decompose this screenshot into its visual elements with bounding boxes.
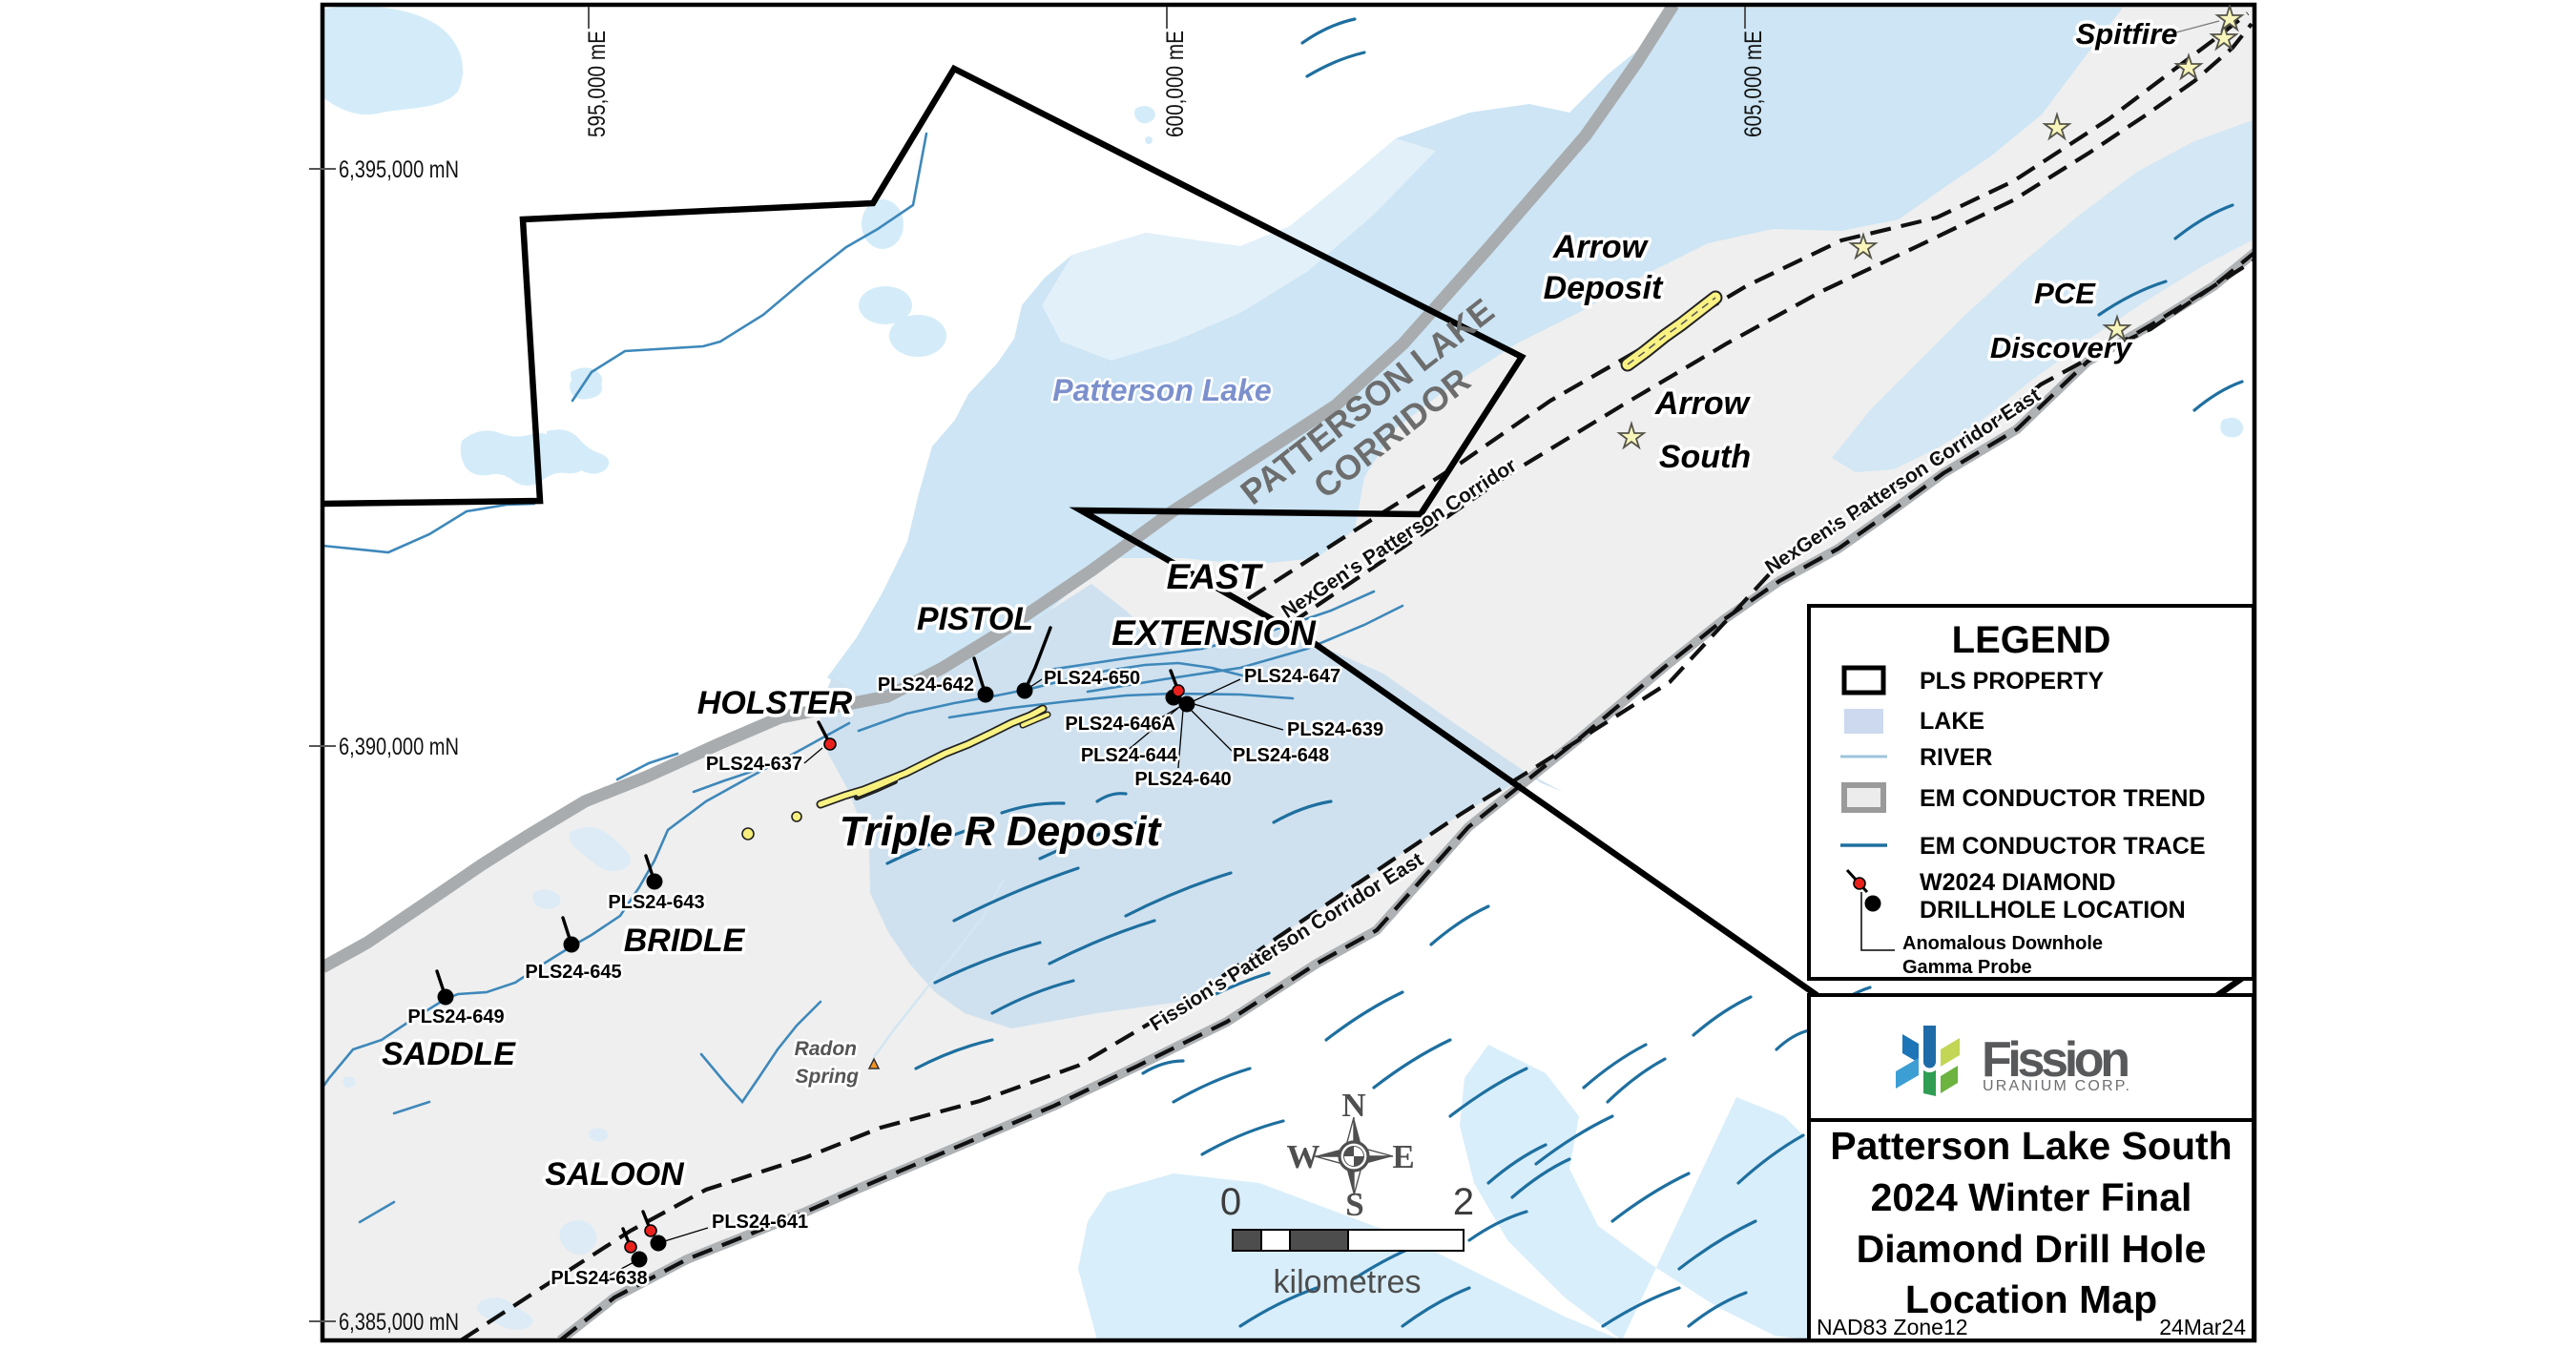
svg-text:PLS24-642: PLS24-642 xyxy=(878,674,974,695)
svg-text:PLS24-644: PLS24-644 xyxy=(1081,745,1178,766)
svg-text:PLS24-640: PLS24-640 xyxy=(1134,769,1231,790)
svg-text:PLS24-648: PLS24-648 xyxy=(1233,745,1329,766)
svg-text:Spitfire: Spitfire xyxy=(2076,17,2178,51)
svg-text:RIVER: RIVER xyxy=(1920,744,1992,771)
svg-text:Arrow: Arrow xyxy=(1552,229,1650,265)
svg-text:Arrow: Arrow xyxy=(1654,385,1752,422)
svg-text:6,385,000 mN: 6,385,000 mN xyxy=(339,1309,459,1336)
svg-text:HOLSTER: HOLSTER xyxy=(697,685,853,721)
svg-text:W: W xyxy=(1287,1138,1320,1175)
svg-text:Triple R Deposit: Triple R Deposit xyxy=(840,808,1163,855)
svg-text:PLS24-639: PLS24-639 xyxy=(1287,719,1383,740)
svg-text:S: S xyxy=(1345,1186,1363,1223)
svg-text:E: E xyxy=(1392,1138,1414,1175)
svg-text:SALOON: SALOON xyxy=(545,1156,685,1193)
svg-text:PLS24-637: PLS24-637 xyxy=(706,754,802,775)
svg-text:PLS PROPERTY: PLS PROPERTY xyxy=(1920,668,2104,695)
svg-text:PLS24-649: PLS24-649 xyxy=(407,1007,504,1027)
svg-text:PLS24-645: PLS24-645 xyxy=(525,962,621,983)
svg-text:LAKE: LAKE xyxy=(1920,708,1984,735)
svg-text:24Mar24: 24Mar24 xyxy=(2159,1315,2246,1339)
svg-text:EM CONDUCTOR TRACE: EM CONDUCTOR TRACE xyxy=(1920,833,2206,860)
svg-text:595,000 mE: 595,000 mE xyxy=(584,31,611,137)
svg-text:W2024 DIAMOND: W2024 DIAMOND xyxy=(1920,869,2116,896)
svg-text:Spring: Spring xyxy=(796,1066,860,1088)
svg-text:Gamma Probe: Gamma Probe xyxy=(1902,957,2032,978)
svg-text:PLS24-647: PLS24-647 xyxy=(1244,666,1340,687)
svg-text:kilometres: kilometres xyxy=(1274,1264,1422,1300)
svg-text:URANIUM CORP.: URANIUM CORP. xyxy=(1983,1078,2131,1094)
svg-text:DRILLHOLE LOCATION: DRILLHOLE LOCATION xyxy=(1920,897,2186,924)
svg-text:Patterson Lake South: Patterson Lake South xyxy=(1830,1124,2232,1168)
svg-text:Deposit: Deposit xyxy=(1544,270,1664,306)
svg-text:Patterson Lake: Patterson Lake xyxy=(1052,373,1271,407)
svg-text:6,390,000 mN: 6,390,000 mN xyxy=(339,734,459,760)
svg-text:EM CONDUCTOR TREND: EM CONDUCTOR TREND xyxy=(1920,785,2206,812)
svg-text:BRIDLE: BRIDLE xyxy=(624,923,746,959)
svg-text:LEGEND: LEGEND xyxy=(1952,619,2111,661)
svg-text:Diamond Drill Hole: Diamond Drill Hole xyxy=(1857,1227,2207,1271)
svg-text:PISTOL: PISTOL xyxy=(917,601,1033,637)
svg-text:605,000 mE: 605,000 mE xyxy=(1740,31,1767,137)
svg-text:SADDLE: SADDLE xyxy=(382,1036,516,1072)
svg-text:6,395,000 mN: 6,395,000 mN xyxy=(339,156,459,183)
svg-text:PLS24-646A: PLS24-646A xyxy=(1065,714,1175,735)
svg-text:PLS24-650: PLS24-650 xyxy=(1044,668,1140,689)
svg-text:2024 Winter Final: 2024 Winter Final xyxy=(1871,1175,2192,1219)
svg-text:EXTENSION: EXTENSION xyxy=(1111,613,1317,653)
svg-text:NAD83 Zone12: NAD83 Zone12 xyxy=(1817,1315,1968,1339)
svg-text:South: South xyxy=(1659,439,1751,475)
svg-text:EAST: EAST xyxy=(1167,557,1264,596)
svg-text:PLS24-643: PLS24-643 xyxy=(608,892,704,913)
svg-text:PLS24-638: PLS24-638 xyxy=(551,1268,647,1289)
svg-text:Radon: Radon xyxy=(795,1038,857,1060)
svg-text:N: N xyxy=(1341,1087,1365,1124)
svg-text:PCE: PCE xyxy=(2034,277,2096,310)
svg-text:Anomalous Downhole: Anomalous Downhole xyxy=(1902,933,2103,954)
svg-text:600,000 mE: 600,000 mE xyxy=(1162,31,1189,137)
svg-text:PLS24-641: PLS24-641 xyxy=(712,1212,808,1233)
svg-text:0: 0 xyxy=(1220,1181,1241,1223)
svg-text:2: 2 xyxy=(1453,1181,1474,1223)
